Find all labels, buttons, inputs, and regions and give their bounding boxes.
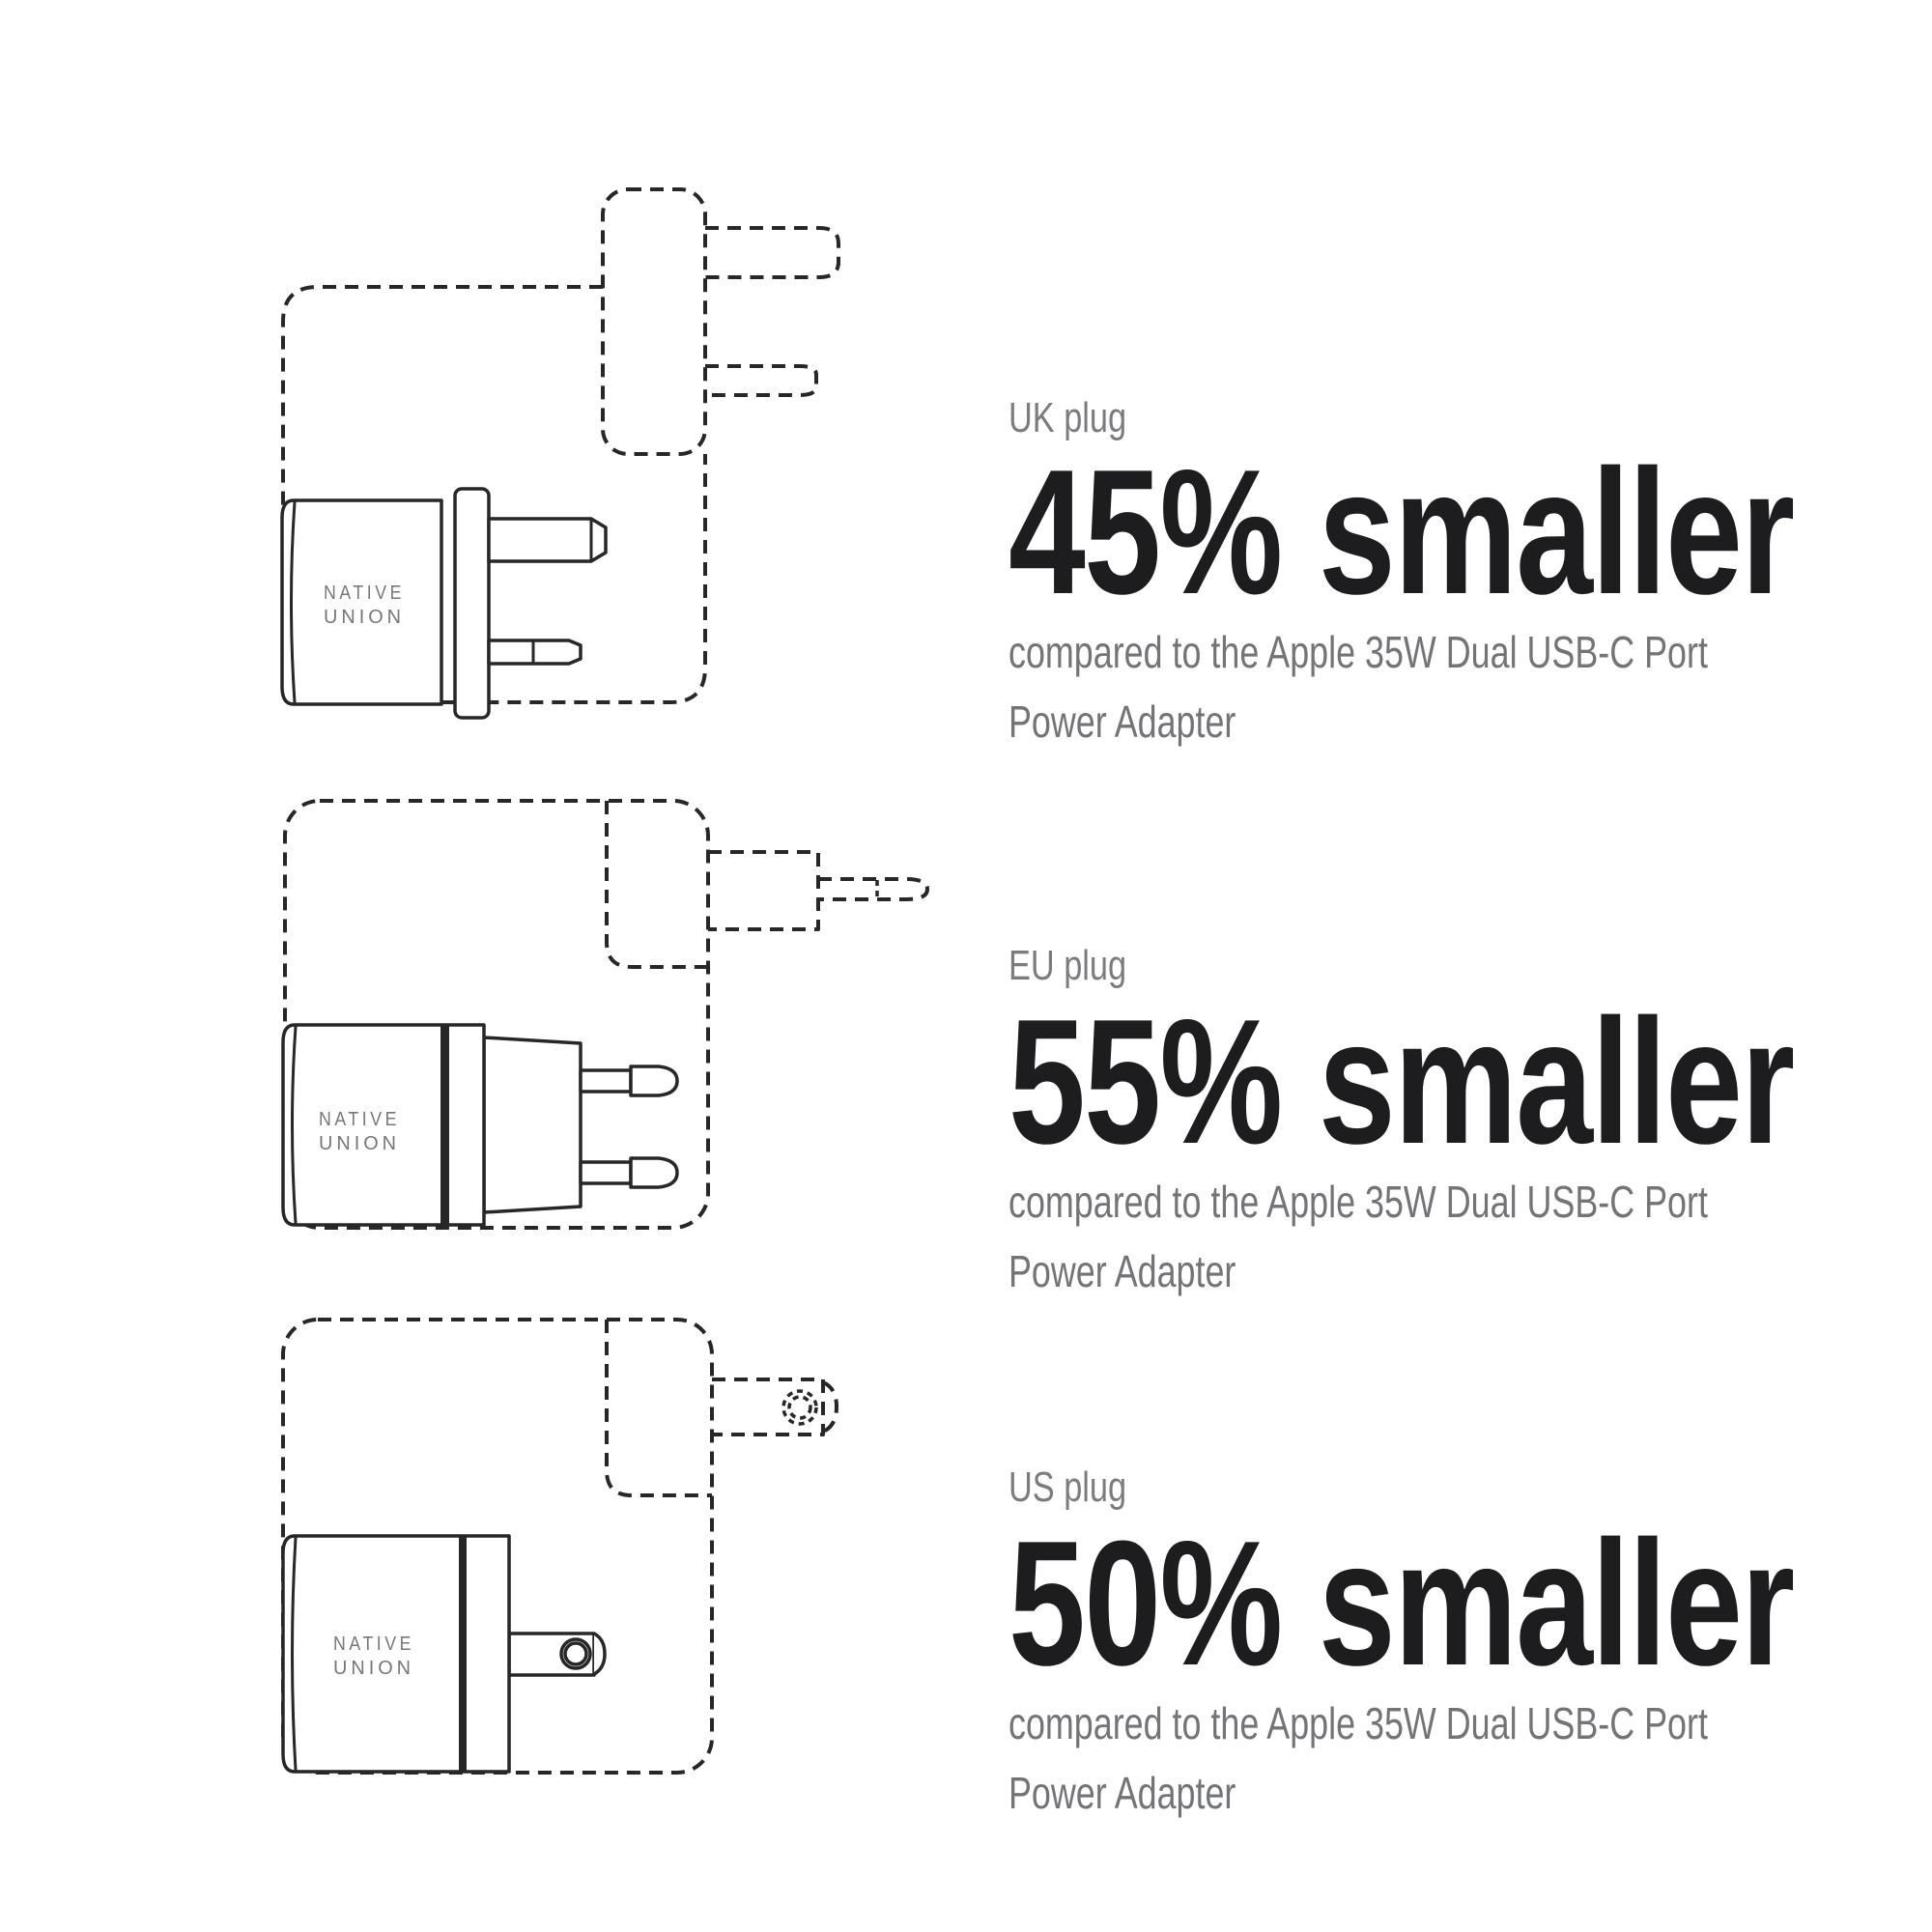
- us-adapter-blade-outline: [712, 1379, 823, 1435]
- eu-brand-logo-line1: NATIVE: [319, 1109, 400, 1130]
- uk-description: compared to the Apple 35W Dual USB-C Por…: [1009, 617, 1708, 756]
- us-description-line2: Power Adapter: [1009, 1758, 1708, 1828]
- us-charger-separation-band: [459, 1537, 467, 1771]
- eu-description-line1: compared to the Apple 35W Dual USB-C Por…: [1009, 1167, 1708, 1236]
- eu-description-line2: Power Adapter: [1009, 1236, 1708, 1306]
- eu-description: compared to the Apple 35W Dual USB-C Por…: [1009, 1167, 1708, 1306]
- eu-native-union-charger: NATIVE UNION: [283, 1025, 677, 1225]
- us-brand-logo-line2: UNION: [333, 1658, 414, 1679]
- eu-brand-logo-line2: UNION: [319, 1133, 400, 1154]
- us-native-union-charger: NATIVE UNION: [283, 1536, 605, 1772]
- uk-brand-logo-line2: UNION: [324, 607, 405, 628]
- uk-headline: 45% smaller: [1009, 442, 1794, 620]
- eu-charger-separation-band: [440, 1026, 449, 1224]
- eu-charger-plug-head: [484, 1037, 581, 1212]
- us-adapter-blade-tip-outline: [823, 1382, 837, 1432]
- eu-adapter-plug-housing-outline: [607, 801, 708, 967]
- uk-adapter-pin-outline: [705, 366, 816, 395]
- uk-native-union-charger: NATIVE UNION: [282, 489, 606, 718]
- us-charger-blade-hole-inner: [565, 1643, 586, 1664]
- uk-diagram: NATIVE UNION: [282, 189, 838, 718]
- eu-headline: 55% smaller: [1009, 992, 1794, 1170]
- uk-adapter-earth-prong-outline: [705, 228, 838, 277]
- eu-charger-bottom-pin-tip: [631, 1158, 677, 1187]
- eu-charger-bottom-pin-base: [581, 1162, 631, 1183]
- uk-charger-earth-pin: [489, 519, 606, 561]
- uk-charger-flange: [455, 489, 489, 718]
- us-diagram: NATIVE UNION: [283, 1320, 837, 1773]
- us-description-line1: compared to the Apple 35W Dual USB-C Por…: [1009, 1689, 1708, 1758]
- us-description: compared to the Apple 35W Dual USB-C Por…: [1009, 1689, 1708, 1828]
- us-adapter-plug-housing-outline: [607, 1320, 712, 1495]
- eu-adapter-plug-head-outline: [708, 852, 818, 929]
- us-headline: 50% smaller: [1009, 1514, 1794, 1691]
- eu-charger-top-pin-base: [581, 1070, 631, 1092]
- us-brand-logo-line1: NATIVE: [333, 1634, 414, 1655]
- us-adapter-blade-hole-inner: [789, 1397, 810, 1418]
- uk-brand-logo-line1: NATIVE: [324, 582, 405, 604]
- eu-diagram: NATIVE UNION: [283, 801, 927, 1228]
- uk-adapter-plug-housing-outline: [603, 189, 705, 454]
- uk-description-line1: compared to the Apple 35W Dual USB-C Por…: [1009, 617, 1708, 687]
- uk-description-line2: Power Adapter: [1009, 687, 1708, 756]
- eu-charger-top-pin-tip: [631, 1066, 677, 1095]
- eu-adapter-pin-outline: [818, 879, 927, 899]
- size-comparison-infographic: NATIVE UNION NATIVE: [0, 0, 1932, 1932]
- us-charger-blade-tip: [594, 1634, 605, 1674]
